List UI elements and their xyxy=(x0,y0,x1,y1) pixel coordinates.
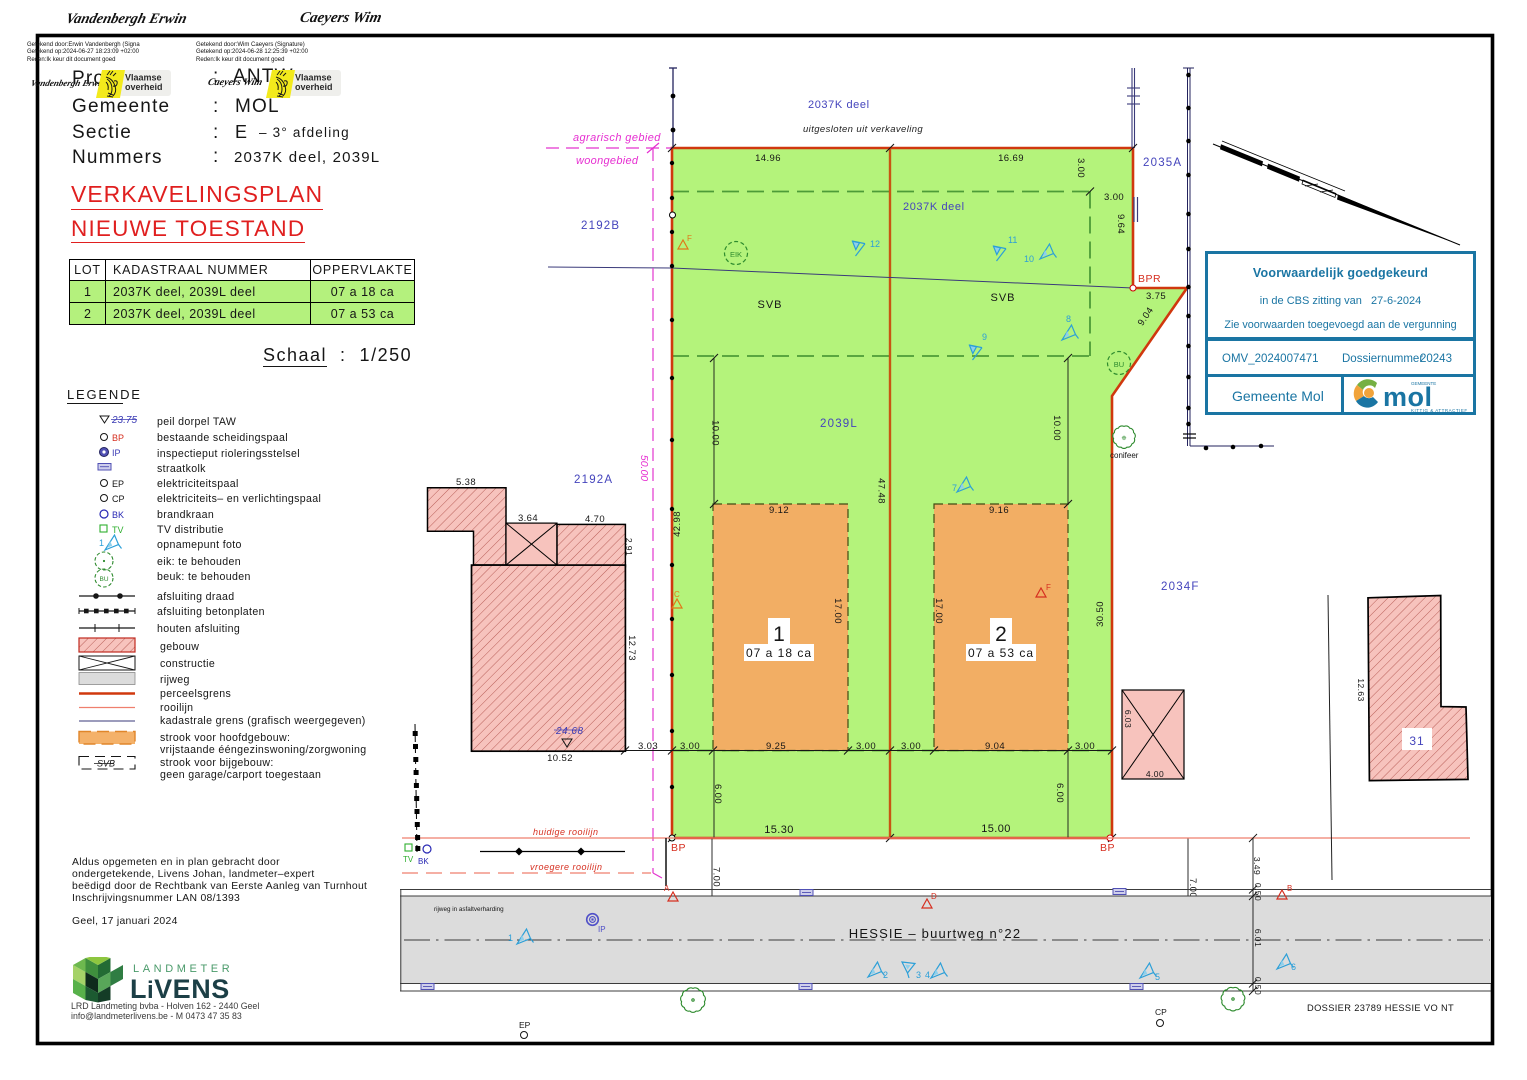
svg-text:3.00: 3.00 xyxy=(1104,192,1124,203)
svg-text:agrarisch gebied: agrarisch gebied xyxy=(573,132,661,144)
svg-text:3.00: 3.00 xyxy=(1075,741,1095,752)
svg-text:❉: ❉ xyxy=(1121,435,1126,442)
svg-text:woongebied: woongebied xyxy=(576,155,639,167)
svg-text:IP: IP xyxy=(112,448,121,458)
svg-text:CP: CP xyxy=(112,494,125,504)
svg-text:7.00: 7.00 xyxy=(711,867,722,887)
svg-text:1: 1 xyxy=(99,538,104,548)
svg-text:6.03: 6.03 xyxy=(1123,710,1133,728)
svg-text:2.91: 2.91 xyxy=(624,538,634,556)
svg-text:BP: BP xyxy=(671,842,686,854)
svg-text:vrijstaande ééngezinswoning/z: vrijstaande ééngezinswoning/zorgwoning xyxy=(160,744,366,756)
svg-text:10.00: 10.00 xyxy=(710,420,721,446)
svg-text:afsluiting draad: afsluiting draad xyxy=(157,591,234,603)
svg-text:elektriciteitspaal: elektriciteitspaal xyxy=(157,478,239,490)
svg-text:24.68: 24.68 xyxy=(555,726,584,737)
svg-text:BK: BK xyxy=(418,857,429,866)
svg-text:17.00: 17.00 xyxy=(832,598,843,624)
svg-text:10.52: 10.52 xyxy=(547,753,573,764)
svg-text:2192A: 2192A xyxy=(574,474,613,486)
svg-text:07 a 18 ca: 07 a 18 ca xyxy=(746,646,812,660)
svg-text:11: 11 xyxy=(1008,235,1017,245)
svg-text:5.38: 5.38 xyxy=(456,477,476,488)
svg-text:3.00: 3.00 xyxy=(1075,158,1086,178)
svg-text:12: 12 xyxy=(870,239,880,249)
svg-text:9: 9 xyxy=(982,332,987,342)
svg-text:10.00: 10.00 xyxy=(1051,415,1062,441)
svg-text:4.70: 4.70 xyxy=(585,514,605,525)
svg-text:8: 8 xyxy=(1066,314,1071,324)
svg-text:9.64: 9.64 xyxy=(1115,214,1126,234)
svg-text:overheid: overheid xyxy=(125,82,163,92)
svg-text:3.00: 3.00 xyxy=(901,741,921,752)
svg-text:6.00: 6.00 xyxy=(712,784,723,804)
svg-text:07 a 53 ca: 07 a 53 ca xyxy=(968,646,1034,660)
svg-text:4.00: 4.00 xyxy=(1146,769,1164,779)
svg-text:EIK: EIK xyxy=(730,250,742,259)
svg-text:EP: EP xyxy=(112,479,124,489)
svg-text:47.48: 47.48 xyxy=(876,478,887,504)
svg-text:12.73: 12.73 xyxy=(626,635,637,661)
svg-text:12.63: 12.63 xyxy=(1356,678,1366,701)
svg-text:50.00: 50.00 xyxy=(638,455,650,481)
svg-text:B: B xyxy=(1287,884,1292,893)
svg-text:kadastrale grens (grafisch: kadastrale grens (grafisch weergegeven) xyxy=(160,715,366,727)
svg-text:A: A xyxy=(664,884,670,893)
svg-text:30.50: 30.50 xyxy=(1095,601,1106,627)
svg-text:9.12: 9.12 xyxy=(769,505,789,516)
svg-text:3.75: 3.75 xyxy=(1146,291,1166,302)
svg-text:rijweg: rijweg xyxy=(160,674,190,686)
svg-text:3: 3 xyxy=(916,970,921,980)
svg-text:houten afsluiting: houten afsluiting xyxy=(157,623,240,635)
svg-text:opnamepunt foto: opnamepunt foto xyxy=(157,539,242,551)
svg-text:brandkraan: brandkraan xyxy=(157,509,214,521)
svg-text:constructie: constructie xyxy=(160,658,215,670)
svg-text:BPR: BPR xyxy=(1138,273,1161,285)
svg-text:5: 5 xyxy=(1155,972,1160,982)
svg-text:TV: TV xyxy=(112,525,124,535)
svg-text:1: 1 xyxy=(508,933,513,943)
svg-text:HESSIE – buurtweg n°22: HESSIE – buurtweg n°22 xyxy=(849,926,1022,941)
svg-text:9.16: 9.16 xyxy=(989,505,1009,516)
svg-text:14.96: 14.96 xyxy=(755,153,781,164)
svg-text:2: 2 xyxy=(883,970,888,980)
svg-text:uitgesloten uit verkaveling: uitgesloten uit verkaveling xyxy=(803,124,923,135)
svg-text:conifeer: conifeer xyxy=(1110,451,1139,460)
svg-text:KITTIG & ATTRACTIEF: KITTIG & ATTRACTIEF xyxy=(1411,408,1468,413)
svg-text:1: 1 xyxy=(773,623,785,646)
svg-text:elektriciteits– en verlichti: elektriciteits– en verlichtingspaal xyxy=(157,493,321,505)
svg-text:2192B: 2192B xyxy=(581,220,620,232)
svg-text:23.75: 23.75 xyxy=(111,415,137,426)
svg-text:7.00: 7.00 xyxy=(1187,878,1198,898)
svg-text:10: 10 xyxy=(1024,254,1034,264)
svg-text:TV: TV xyxy=(403,855,414,864)
svg-text:3.64: 3.64 xyxy=(518,513,538,524)
svg-text:overheid: overheid xyxy=(295,82,333,92)
svg-text:rijweg in asfaltverharding: rijweg in asfaltverharding xyxy=(434,906,504,913)
svg-text:BU: BU xyxy=(99,576,108,583)
svg-text:SVB: SVB xyxy=(990,292,1015,304)
svg-text:IP: IP xyxy=(598,925,606,934)
svg-text:C: C xyxy=(674,590,680,599)
svg-text:16.69: 16.69 xyxy=(998,153,1024,164)
svg-text:2037K deel: 2037K deel xyxy=(903,201,965,213)
svg-text:6.01: 6.01 xyxy=(1253,929,1263,947)
svg-text:3.49: 3.49 xyxy=(1252,857,1262,875)
svg-text:F: F xyxy=(687,234,692,243)
svg-text:SVB: SVB xyxy=(757,299,782,311)
svg-text:eik: te behouden: eik: te behouden xyxy=(157,556,241,568)
svg-text:7: 7 xyxy=(952,483,957,493)
svg-text:beuk: te behouden: beuk: te behouden xyxy=(157,571,251,583)
svg-text:BP: BP xyxy=(1100,842,1115,854)
svg-text:rooilijn: rooilijn xyxy=(160,702,193,714)
svg-text:6: 6 xyxy=(1291,962,1296,972)
svg-text:strook voor hoofdgebouw:: strook voor hoofdgebouw: xyxy=(160,732,290,744)
svg-text:vroegere rooilijn: vroegere rooilijn xyxy=(530,862,603,872)
svg-text:9.04: 9.04 xyxy=(985,741,1005,752)
svg-text:CP: CP xyxy=(1155,1007,1167,1017)
svg-text:EP: EP xyxy=(519,1020,531,1030)
svg-text:3.00: 3.00 xyxy=(856,741,876,752)
svg-text:D: D xyxy=(931,892,937,901)
svg-text:17.00: 17.00 xyxy=(933,598,944,624)
svg-text:15.00: 15.00 xyxy=(981,823,1011,835)
svg-text:LEGENDE: LEGENDE xyxy=(67,387,142,402)
svg-text:4: 4 xyxy=(925,970,930,980)
svg-text:6.00: 6.00 xyxy=(1054,783,1065,803)
svg-text:inspectieput rioleringsstelse: inspectieput rioleringsstelsel xyxy=(157,448,300,460)
svg-text:BK: BK xyxy=(112,510,124,520)
svg-text:peil dorpel TAW: peil dorpel TAW xyxy=(157,416,236,428)
svg-text:strook voor bijgebouw:: strook voor bijgebouw: xyxy=(160,757,274,769)
svg-text:geen garage/carport toegesta: geen garage/carport toegestaan xyxy=(160,769,321,781)
svg-text:gebouw: gebouw xyxy=(160,641,199,653)
svg-text:31: 31 xyxy=(1409,734,1424,748)
svg-text:2035A: 2035A xyxy=(1143,157,1182,169)
svg-text:2039L: 2039L xyxy=(820,418,858,430)
svg-text:2: 2 xyxy=(995,623,1007,646)
svg-text:9.25: 9.25 xyxy=(766,741,786,752)
svg-text:afsluiting betonplaten: afsluiting betonplaten xyxy=(157,606,265,618)
svg-text:TV distributie: TV distributie xyxy=(157,524,224,536)
svg-text:DOSSIER 23789 HESSIE VO NT: DOSSIER 23789 HESSIE VO NT xyxy=(1307,1003,1454,1013)
svg-text:0.50: 0.50 xyxy=(1253,883,1263,901)
svg-text:3.00: 3.00 xyxy=(680,741,700,752)
svg-text:BP: BP xyxy=(112,433,124,443)
svg-text:straatkolk: straatkolk xyxy=(157,463,206,475)
svg-text:2037K deel: 2037K deel xyxy=(808,99,870,111)
svg-text:42.98: 42.98 xyxy=(672,511,683,537)
svg-text:bestaande scheidingspaal: bestaande scheidingspaal xyxy=(157,432,288,444)
svg-text:Vlaamse: Vlaamse xyxy=(295,73,332,83)
svg-text:perceelsgrens: perceelsgrens xyxy=(160,688,231,700)
svg-text:Vlaamse: Vlaamse xyxy=(125,73,162,83)
svg-text:GEMEENTE: GEMEENTE xyxy=(1411,381,1436,386)
svg-text:F: F xyxy=(1046,583,1051,592)
svg-text:2034F: 2034F xyxy=(1161,581,1200,593)
svg-text:huidige rooilijn: huidige rooilijn xyxy=(533,827,599,837)
svg-text:15.30: 15.30 xyxy=(764,824,794,836)
svg-text:3.03: 3.03 xyxy=(638,741,658,752)
svg-text:BU: BU xyxy=(1114,360,1124,369)
svg-text:0.50: 0.50 xyxy=(1253,977,1263,995)
